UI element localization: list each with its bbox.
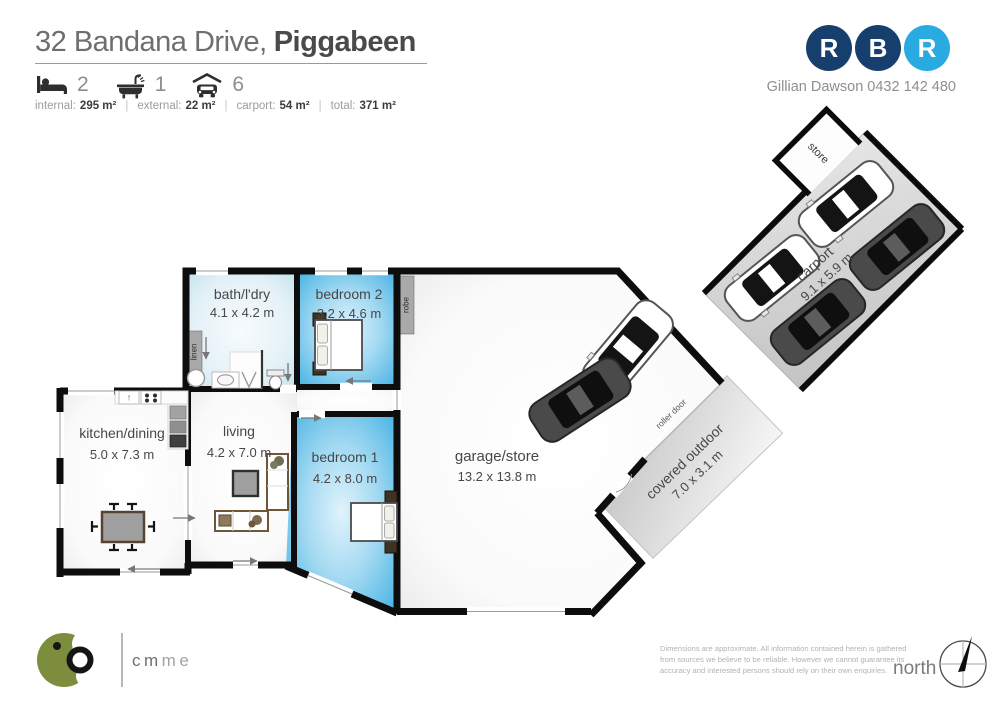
bedroom2-bed xyxy=(313,313,362,375)
bedroom2-label: bedroom 2 xyxy=(316,286,383,302)
garage-label: garage/store xyxy=(455,448,539,465)
north-compass: north xyxy=(875,628,995,703)
tub-icon xyxy=(188,370,205,387)
stove-icon xyxy=(141,391,161,404)
toilet-icon xyxy=(270,376,282,389)
garage-dims: 13.2 x 13.8 m xyxy=(458,469,537,484)
bedroom2-dims: 3.2 x 4.6 m xyxy=(317,306,381,321)
disclaimer-line: from sources we believe to be reliable. … xyxy=(660,654,910,665)
bedroom1-dims: 4.2 x 8.0 m xyxy=(313,471,377,486)
lens-icon xyxy=(70,650,91,671)
dining-table xyxy=(92,504,154,550)
kitchen-label: kitchen/dining xyxy=(79,425,165,441)
bedroom1-label: bedroom 1 xyxy=(312,449,379,465)
linen-label: linen xyxy=(190,344,199,361)
floorplan-drawing: covered outdoor 7.0 x 3.1 m store xyxy=(0,0,1000,706)
brand-media: media xyxy=(162,651,190,670)
coffee-table xyxy=(233,471,258,496)
sink-icon xyxy=(218,375,234,385)
svg-text:cmmedia: cmmedia xyxy=(132,651,190,670)
north-label: north xyxy=(893,658,936,679)
living-dims: 4.2 x 7.0 m xyxy=(207,445,271,460)
robe-label: robe xyxy=(402,296,411,313)
bath-label: bath/l'dry xyxy=(214,286,270,302)
disclaimer-line: accuracy and interested persons should r… xyxy=(660,665,910,676)
cmmedia-logo: cmmedia xyxy=(30,625,190,695)
floorplan-page: 32 Bandana Drive,Piggabeen 2 1 xyxy=(0,0,1000,706)
bath-dims: 4.1 x 4.2 m xyxy=(210,305,274,320)
brand-cm: cm xyxy=(132,651,162,670)
living-label: living xyxy=(223,423,255,439)
disclaimer-text: Dimensions are approximate. All informat… xyxy=(660,643,910,676)
kitchen-dims: 5.0 x 7.3 m xyxy=(90,447,154,462)
disclaimer-line: Dimensions are approximate. All informat… xyxy=(660,643,910,654)
